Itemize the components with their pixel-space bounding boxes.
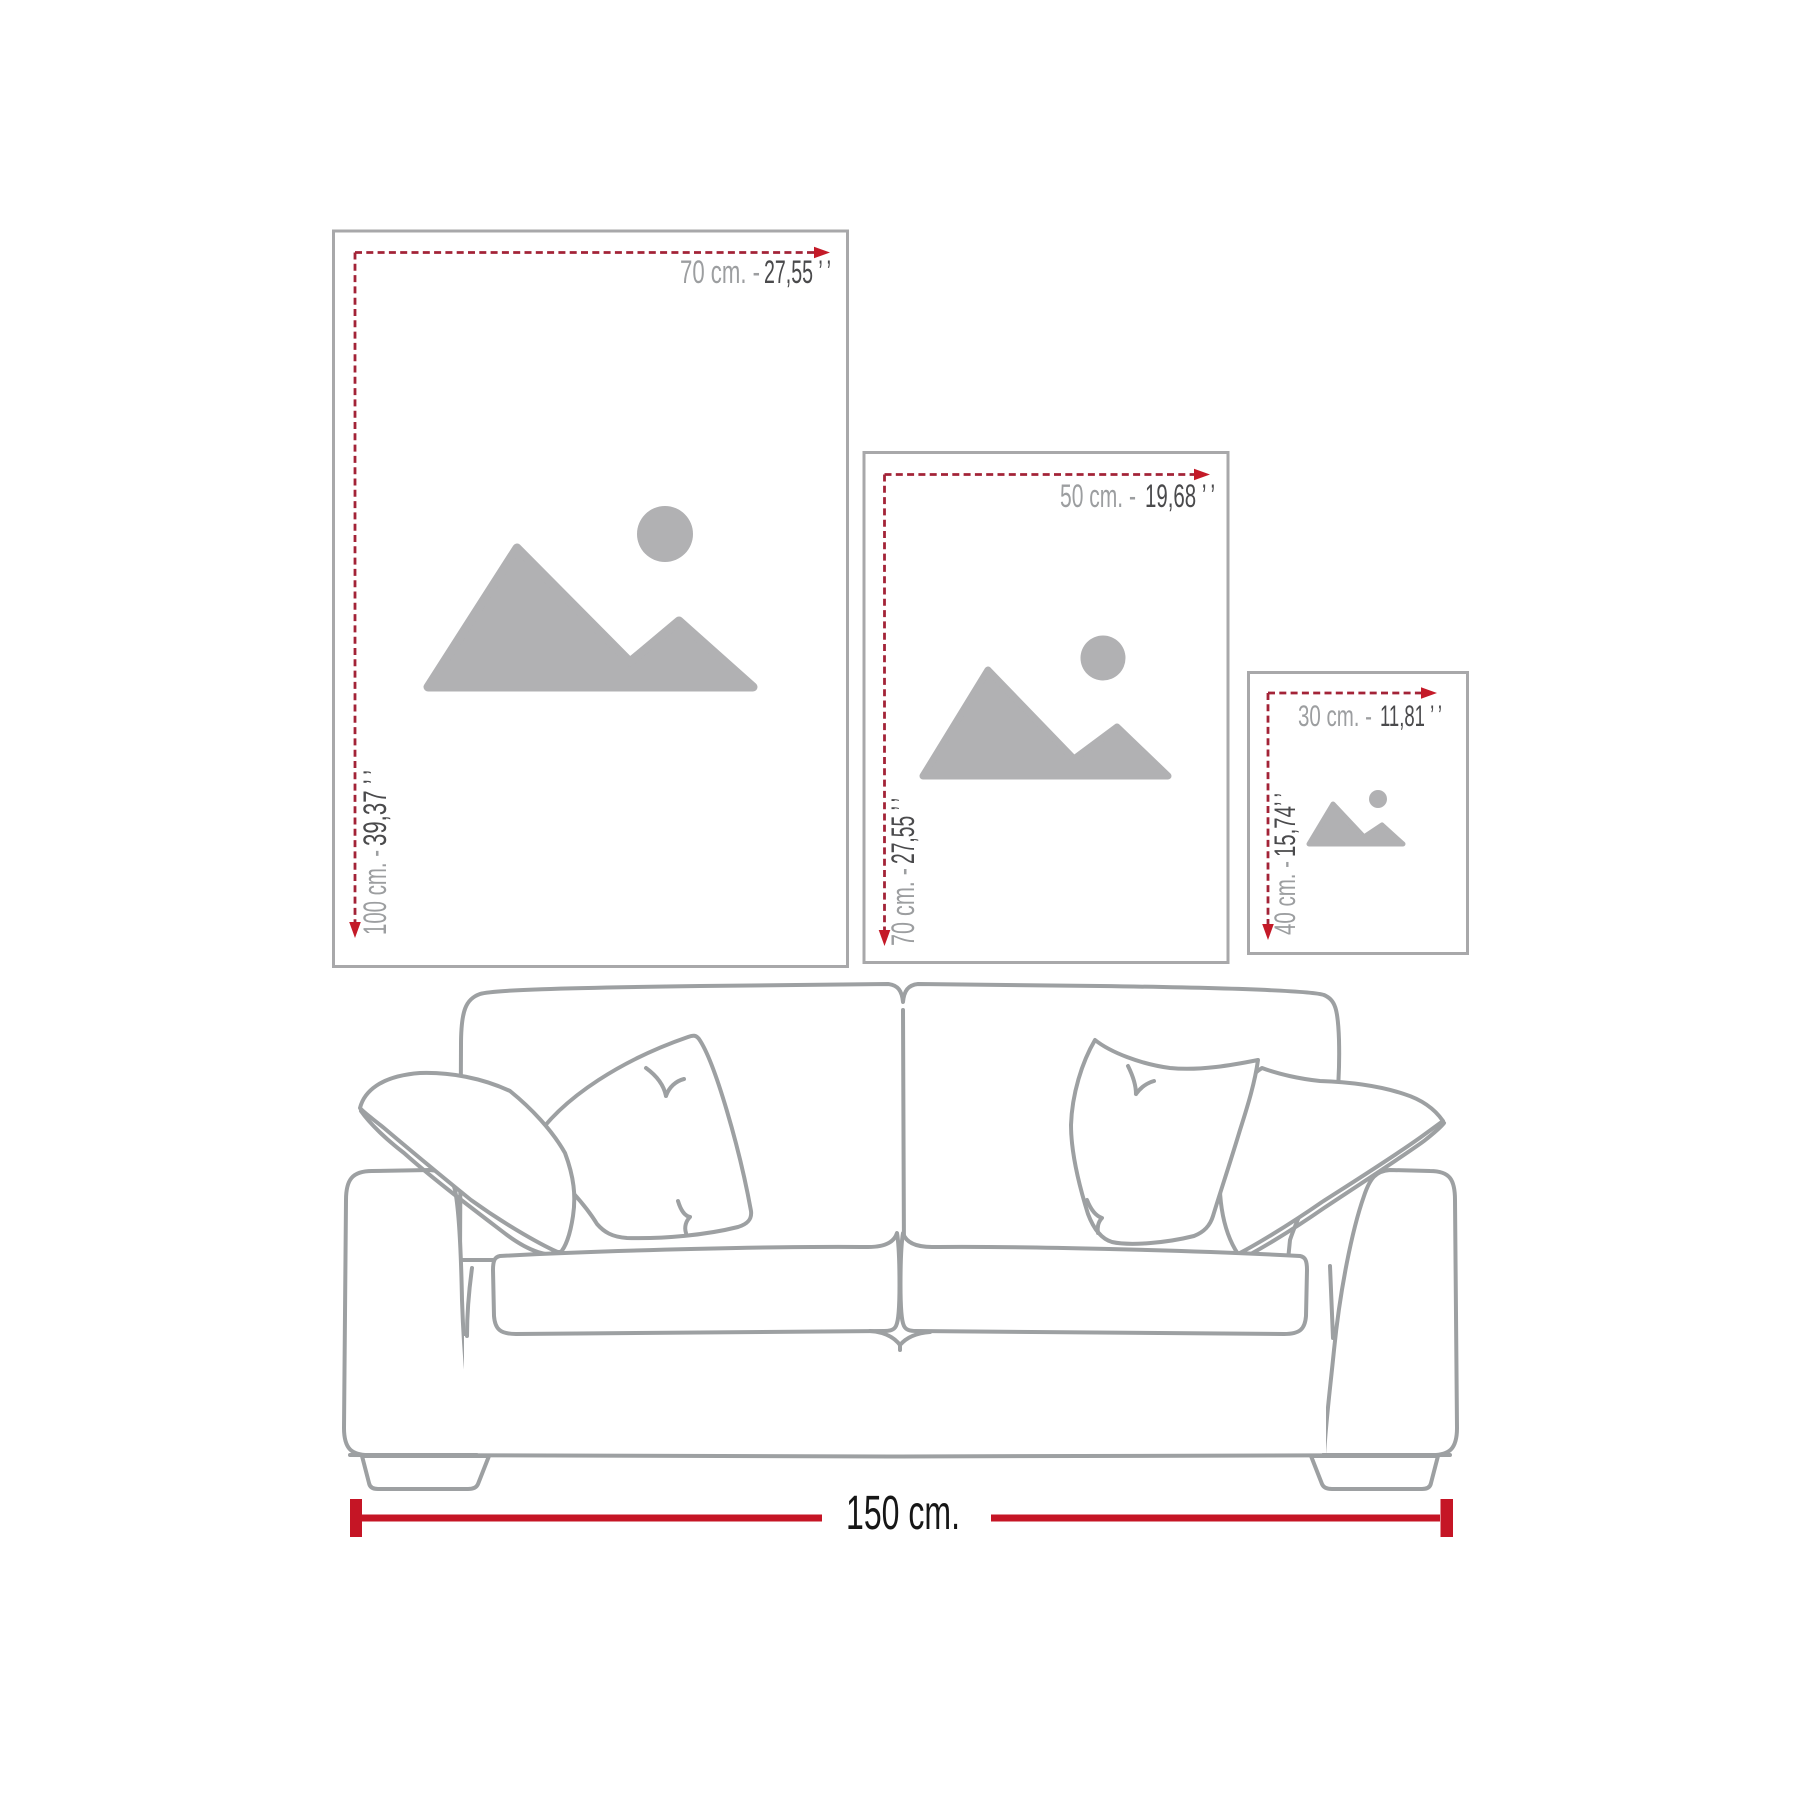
svg-text:15,74’ ’: 15,74’ ’ <box>1269 793 1302 857</box>
svg-text:150 cm.: 150 cm. <box>846 1487 960 1540</box>
svg-text:30 cm. -: 30 cm. - <box>1298 700 1372 733</box>
svg-text:11,81 ’ ’: 11,81 ’ ’ <box>1380 700 1442 733</box>
svg-text:27,55 ’ ’: 27,55 ’ ’ <box>885 798 921 864</box>
svg-text:39,37 ’ ’: 39,37 ’ ’ <box>357 770 393 846</box>
svg-text:19,68 ’ ’: 19,68 ’ ’ <box>1145 478 1215 514</box>
svg-text:40 cm. -: 40 cm. - <box>1269 861 1302 935</box>
svg-text:100 cm. -: 100 cm. - <box>357 850 393 935</box>
svg-text:27,55 ’ ’: 27,55 ’ ’ <box>764 254 831 290</box>
svg-text:70 cm. -: 70 cm. - <box>680 254 760 290</box>
svg-text:70 cm. -: 70 cm. - <box>885 868 921 946</box>
svg-text:50 cm. -: 50 cm. - <box>1060 478 1136 514</box>
